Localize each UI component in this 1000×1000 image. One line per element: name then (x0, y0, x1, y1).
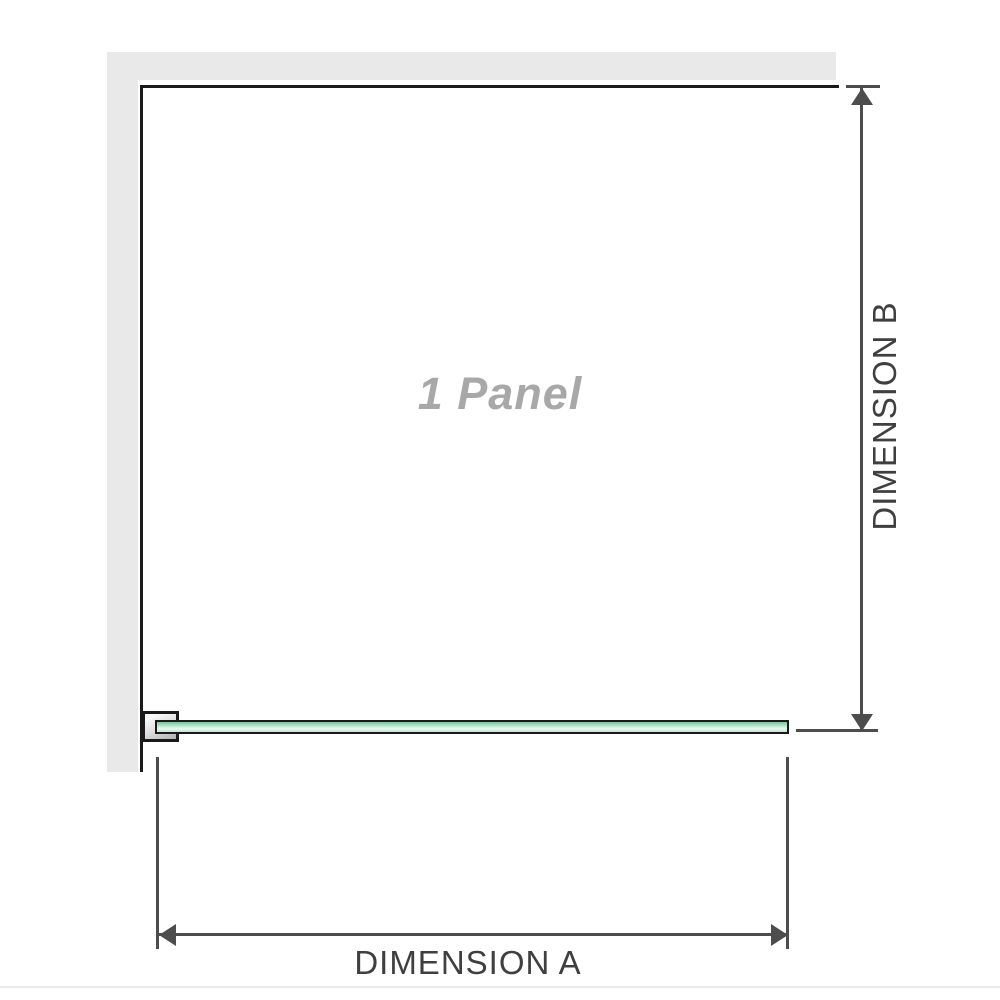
panel-left-edge-line (140, 85, 143, 772)
dimension-a-right-extension-line (786, 757, 789, 949)
arrow-right-icon (771, 924, 788, 946)
glass-panel-bar (155, 720, 789, 734)
arrow-down-icon (851, 714, 873, 731)
panel-count-label: 1 Panel (300, 368, 700, 420)
arrow-left-icon (159, 924, 176, 946)
wall-vertical-strip (107, 52, 138, 772)
panel-top-edge-line (140, 85, 839, 88)
dimension-a-label: DIMENSION A (268, 944, 668, 982)
arrow-up-icon (851, 88, 873, 105)
dimension-a-line (159, 933, 788, 936)
dimension-a-left-extension-line (156, 757, 159, 949)
bottom-divider-line (0, 986, 1000, 988)
wall-horizontal-strip (107, 52, 836, 80)
dimension-b-label: DIMENSION B (863, 216, 907, 616)
shower-panel-dimension-diagram: DIMENSION B DIMENSION A 1 Panel (0, 0, 1000, 1000)
